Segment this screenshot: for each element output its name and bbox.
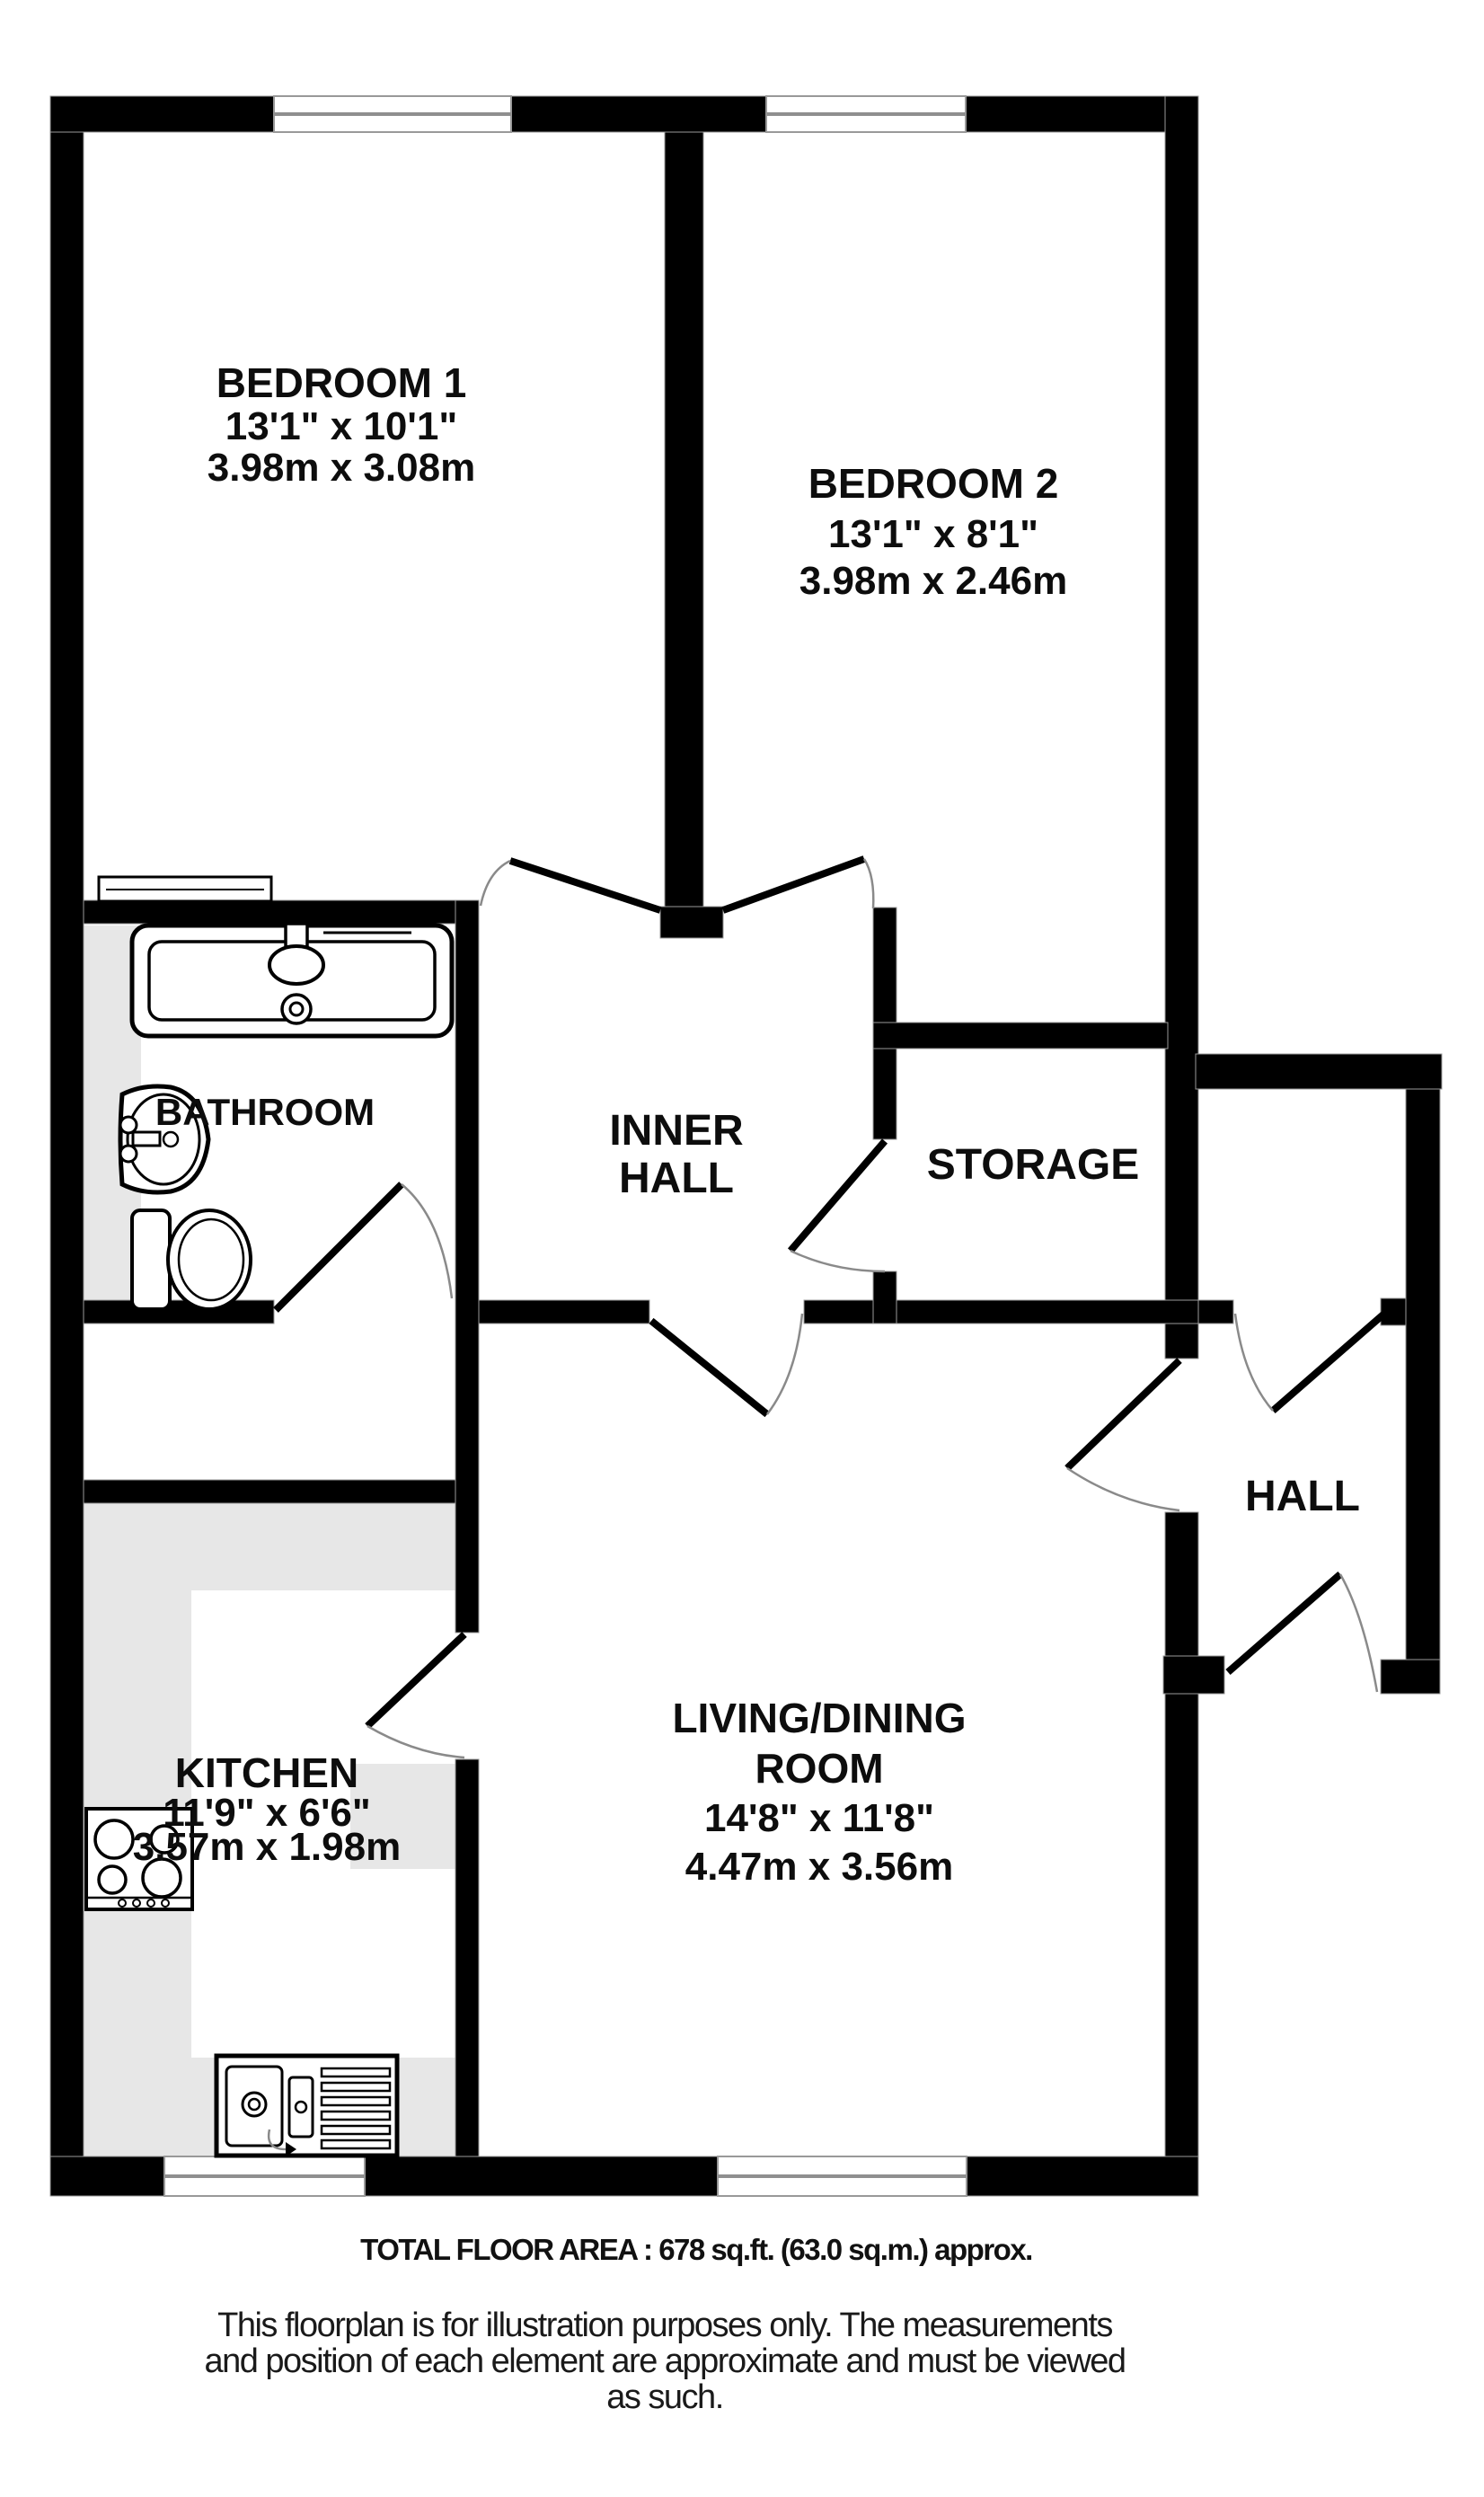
- disclaimer-line2: and position of each element are approxi…: [204, 2342, 1125, 2380]
- door-bedroom2-icon: [723, 859, 873, 910]
- door-bedroom1-icon: [481, 861, 660, 910]
- disclaimer-line1: This floorplan is for illustration purpo…: [217, 2307, 1112, 2344]
- storage-label: STORAGE: [927, 1141, 1139, 1189]
- wardrobe-icon: [99, 877, 271, 901]
- total-floor-area: TOTAL FLOOR AREA : 678 sq.ft. (63.0 sq.m…: [360, 2233, 1032, 2266]
- bedroom1-dims-imperial: 13'1" x 10'1": [225, 404, 457, 448]
- kitchen-label: KITCHEN: [175, 1749, 358, 1796]
- kitchen-sink-icon: [216, 2056, 397, 2156]
- door-storage-icon: [791, 1141, 885, 1271]
- bedroom2-dims-imperial: 13'1" x 8'1": [828, 512, 1038, 556]
- living-room-dims-imperial: 14'8" x 11'8": [704, 1796, 934, 1840]
- floorplan-svg: BEDROOM 1 13'1" x 10'1" 3.98m x 3.08m BE…: [0, 0, 1484, 2497]
- door-bathroom-icon: [276, 1184, 452, 1310]
- window-icon: [718, 2156, 967, 2196]
- window-icon: [766, 96, 966, 132]
- bedroom1-dims-metric: 3.98m x 3.08m: [208, 446, 475, 490]
- door-living-room-icon: [651, 1314, 802, 1414]
- hall-label: HALL: [1245, 1473, 1360, 1520]
- inner-hall-label-line1: INNER: [609, 1107, 743, 1155]
- living-room-label-line1: LIVING/DINING: [672, 1695, 966, 1741]
- kitchen-dims-metric: 3.57m x 1.98m: [133, 1825, 401, 1869]
- living-room-dims-metric: 4.47m x 3.56m: [685, 1845, 953, 1889]
- bathtub-icon: [132, 924, 452, 1036]
- floorplan-page: BEDROOM 1 13'1" x 10'1" 3.98m x 3.08m BE…: [0, 0, 1484, 2497]
- disclaimer-line3: as such.: [606, 2378, 723, 2416]
- door-hall-to-living-icon: [1067, 1360, 1179, 1510]
- bathroom-label: BATHROOM: [155, 1091, 375, 1133]
- footer: TOTAL FLOOR AREA : 678 sq.ft. (63.0 sq.m…: [204, 2233, 1125, 2416]
- living-room-label-line2: ROOM: [755, 1745, 883, 1792]
- window-icon: [274, 96, 511, 132]
- door-kitchen-icon: [367, 1634, 464, 1758]
- toilet-icon: [132, 1210, 251, 1309]
- bedroom1-label: BEDROOM 1: [216, 359, 467, 406]
- bedroom2-label: BEDROOM 2: [808, 460, 1059, 507]
- door-entrance-icon: [1228, 1574, 1377, 1692]
- door-hall-partition-icon: [1235, 1314, 1384, 1411]
- bedroom2-dims-metric: 3.98m x 2.46m: [799, 559, 1067, 603]
- window-icon: [164, 2156, 365, 2196]
- inner-hall-label-line2: HALL: [619, 1155, 734, 1202]
